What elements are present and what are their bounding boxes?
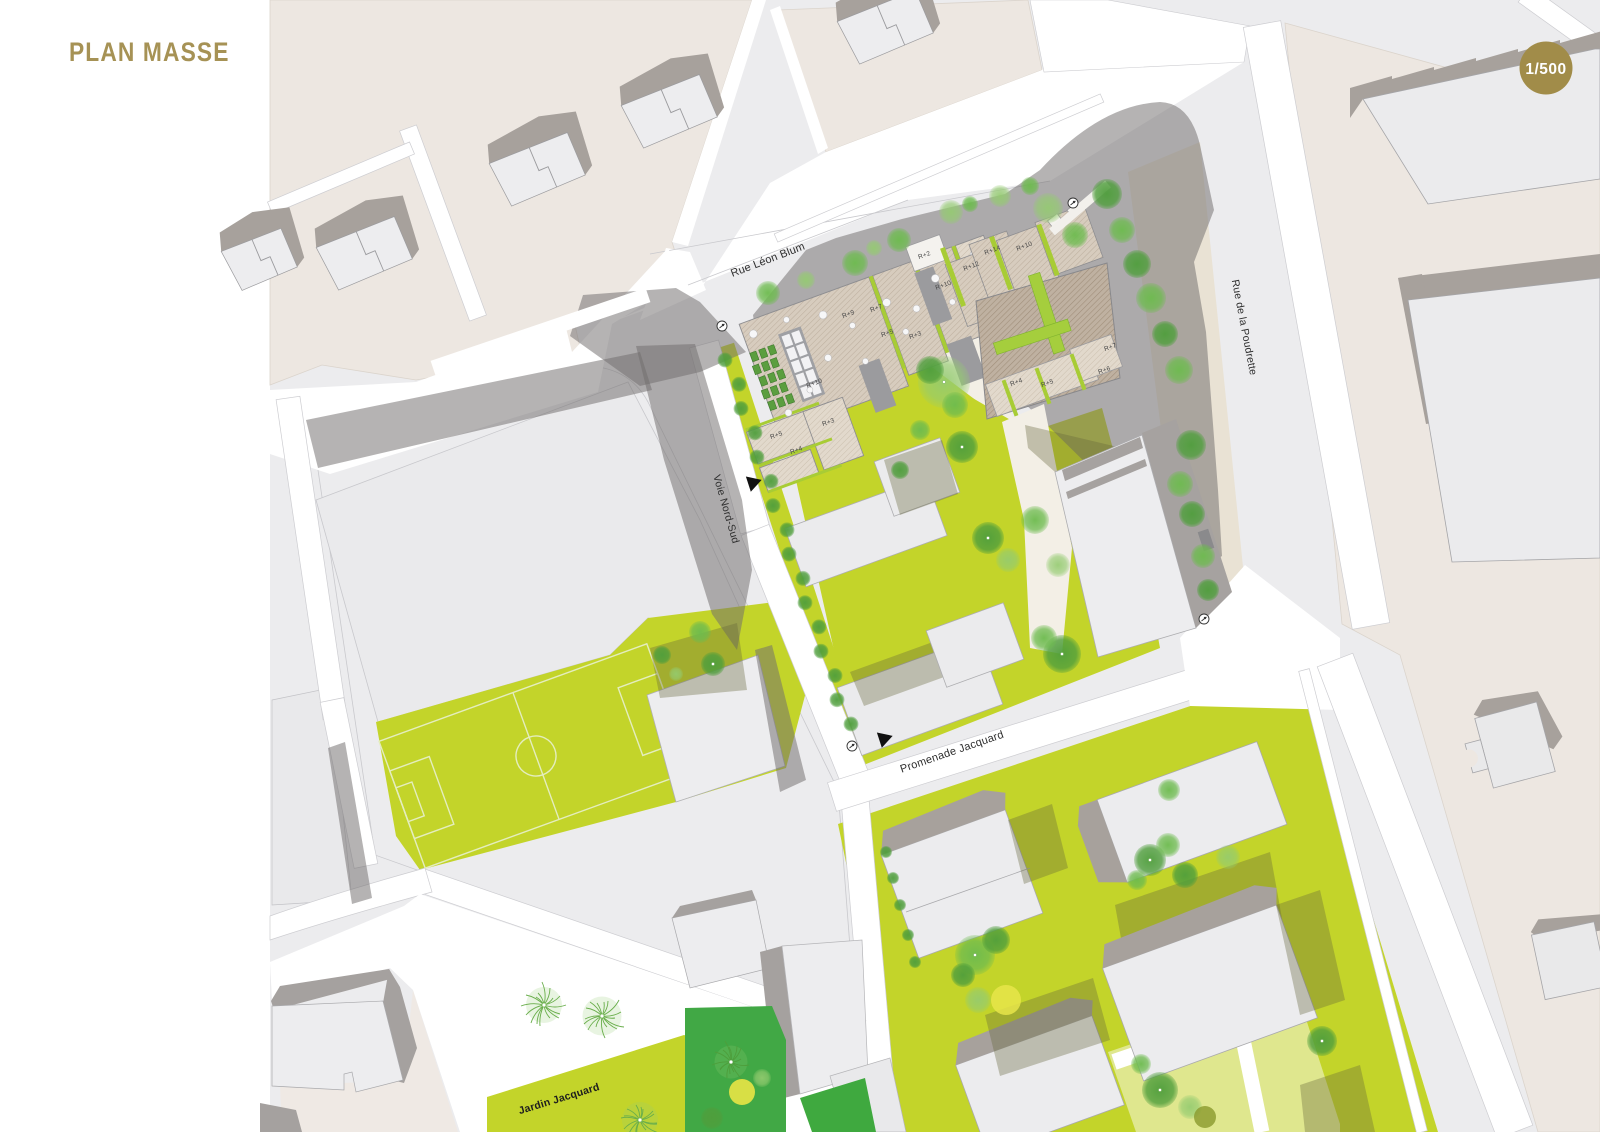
svg-text:1/500: 1/500 [1525,61,1566,78]
svg-text:PLAN MASSE: PLAN MASSE [69,38,230,67]
